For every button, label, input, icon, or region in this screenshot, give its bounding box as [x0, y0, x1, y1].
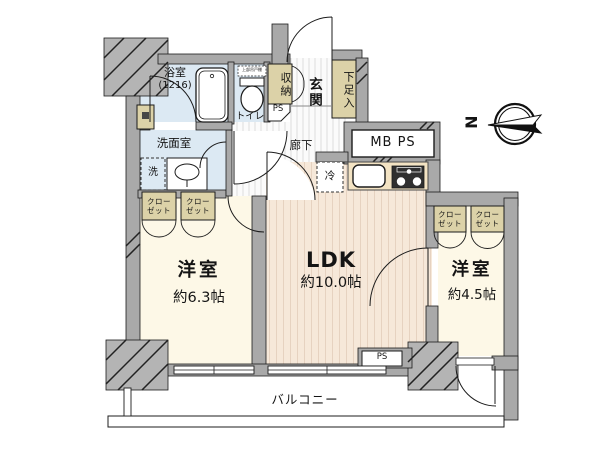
washer-label: 洗: [143, 167, 163, 179]
compass-north-label: N: [463, 112, 481, 132]
bathroom-size-label: (1216): [147, 80, 203, 92]
closet-label: クローゼット: [142, 194, 176, 218]
toilet-label: トイレ: [234, 112, 266, 123]
balcony-door: [456, 366, 496, 406]
balcony-railing: [108, 416, 504, 427]
west-room-size-label: 約6.3帖: [162, 290, 236, 307]
hallway-label: 廊下: [285, 139, 317, 152]
west-room-name-label: 洋室: [164, 260, 234, 281]
balcony-post: [124, 388, 131, 416]
ps-bottom-label: PS: [362, 353, 402, 363]
closet-label: クローゼット: [434, 207, 466, 231]
closet-label: クローゼット: [471, 207, 504, 231]
entrance-label: 玄関: [301, 70, 321, 114]
sink-icon: [167, 158, 207, 190]
stove-icon: [392, 166, 424, 188]
fridge-label: 冷: [320, 170, 340, 182]
ldk-west-divider-wall: [252, 196, 266, 366]
kitchen-counter: [348, 162, 428, 190]
closet-label: クローゼット: [181, 194, 215, 218]
kitchen-sink-icon: [353, 165, 385, 187]
entrance-door: [287, 17, 332, 62]
east-room-name-label: 洋室: [439, 260, 505, 280]
bathroom-label: 浴室: [150, 67, 200, 80]
ps-top-label: PS: [268, 105, 288, 115]
shoe-cabinet-label: 下足入: [334, 63, 354, 117]
bathtub-icon: [196, 68, 228, 122]
entrance-stub-wall: [272, 24, 288, 64]
ldk-name-label: LDK: [296, 248, 366, 272]
meter-box-label: MB PS: [352, 136, 434, 151]
balcony-label: バルコニー: [250, 393, 360, 407]
storage-label: 収納: [269, 67, 291, 103]
sliding-window: [174, 366, 254, 374]
floor-plan: 浴室 (1216) 上部吊戸棚 トイレ 収納 玄関 下足入 PS 洗面室 洗 廊…: [0, 0, 600, 450]
balcony-door-threshold: [456, 358, 494, 365]
compass-icon: [488, 104, 541, 144]
toilet-shelf-label: 上部吊戸棚: [238, 68, 266, 73]
washroom-label: 洗面室: [145, 137, 203, 150]
pillar-bottom-left: [106, 340, 168, 390]
ldk-size-label: 約10.0帖: [296, 275, 366, 292]
kitchen-wall: [316, 152, 348, 162]
right-wall: [504, 198, 518, 420]
sliding-window: [268, 366, 386, 374]
floor-plan-canvas: [0, 0, 600, 450]
left-wall: [126, 96, 140, 346]
east-room-size-label: 約4.5帖: [437, 288, 507, 304]
